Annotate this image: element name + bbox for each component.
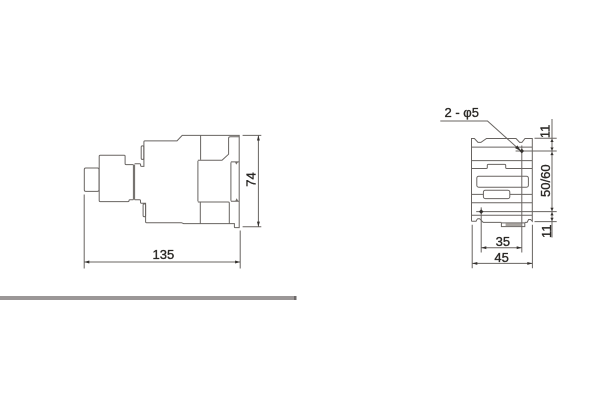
svg-text:11: 11 [539,225,554,239]
svg-text:35: 35 [496,234,510,249]
svg-text:50/60: 50/60 [538,164,553,197]
svg-text:74: 74 [244,172,259,186]
svg-text:2 - φ5: 2 - φ5 [445,105,479,120]
svg-text:45: 45 [494,250,508,265]
svg-text:135: 135 [153,247,175,262]
svg-text:11: 11 [538,125,553,139]
